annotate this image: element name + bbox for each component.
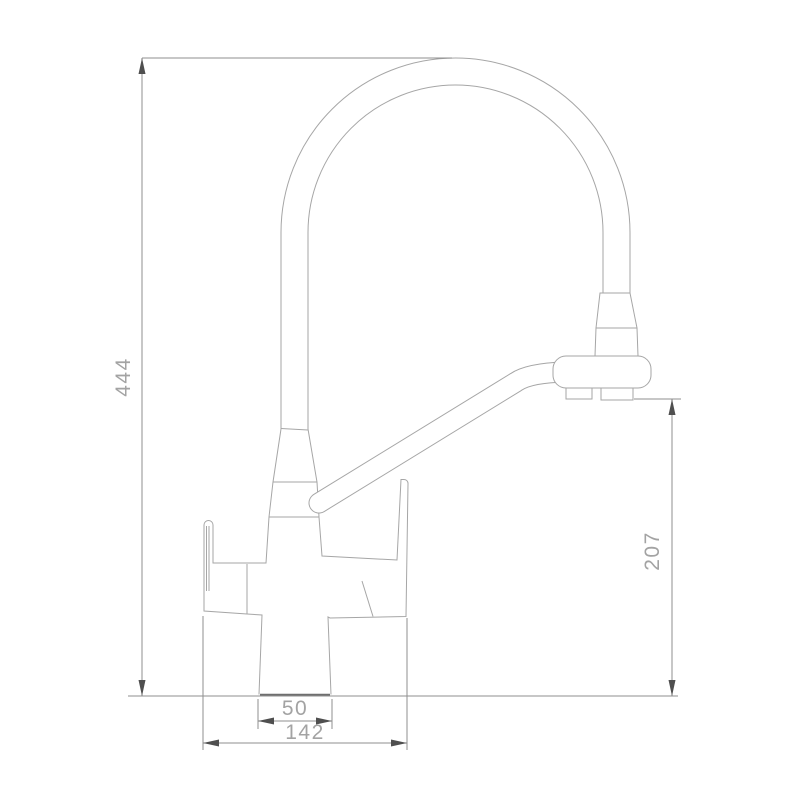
dimension-label-overall-height: 444 (112, 357, 135, 397)
spout-outlet-left (566, 388, 592, 399)
dim-arrow-down-icon (669, 680, 676, 696)
dimension-overall-width: 142 (203, 616, 407, 750)
dim-arrow-down-icon (139, 680, 146, 696)
dim-arrow-up-icon (139, 58, 146, 74)
dim-arrow-left-icon (258, 718, 274, 725)
dim-arrow-up-icon (669, 399, 676, 415)
faucet-outline (204, 58, 651, 695)
faucet-technical-drawing: 444 207 50 142 (0, 0, 800, 800)
riser-joint-line (281, 429, 308, 431)
right-handle-detail-line (362, 581, 373, 617)
dimension-label-overall-width: 142 (285, 721, 325, 744)
spout-connector-cylinder (595, 328, 638, 356)
dimension-label-spout-height: 207 (641, 531, 664, 571)
spout-head (553, 356, 651, 388)
left-handle-detail-line (207, 526, 210, 591)
dim-arrow-right-icon (391, 740, 407, 747)
dimension-spout-height: 207 (634, 399, 681, 696)
dim-arrow-left-icon (203, 740, 219, 747)
spout-outlet-right (601, 388, 633, 400)
drawing-canvas: 444 207 50 142 (0, 0, 800, 800)
dimension-label-base-width: 50 (282, 697, 308, 720)
spout-connector-bell (596, 293, 637, 328)
spout-arm-fill (319, 372, 565, 503)
dimension-overall-height: 444 (112, 58, 452, 696)
